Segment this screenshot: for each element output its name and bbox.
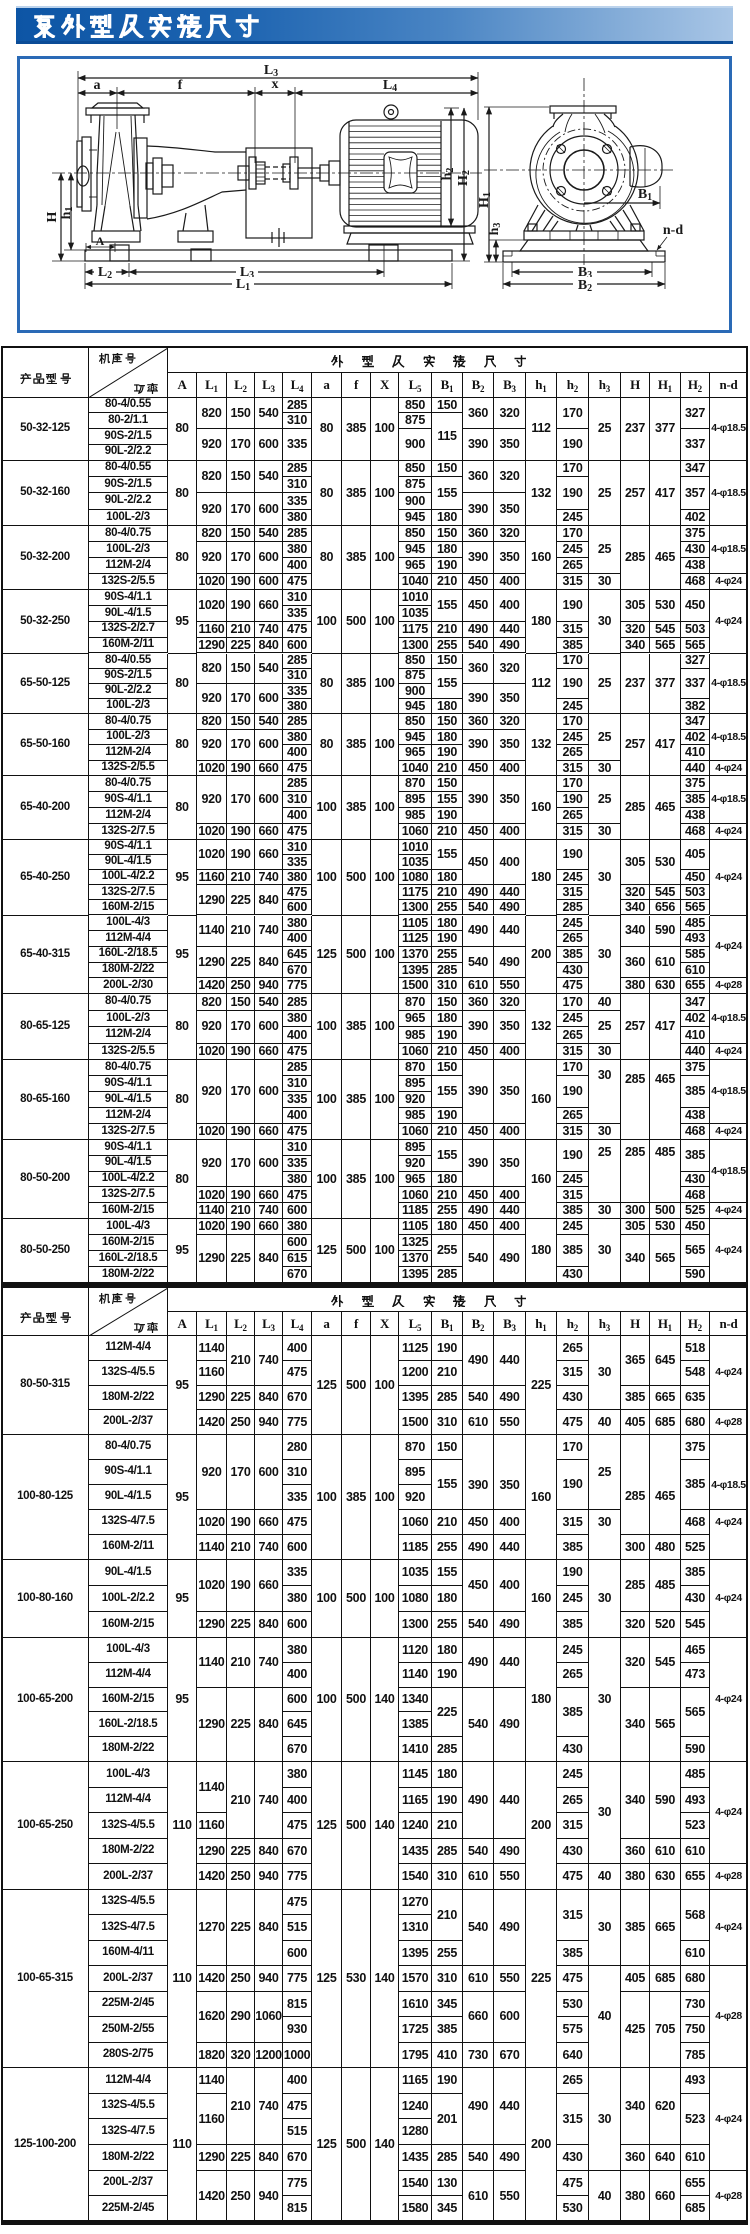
svg-text:f: f [178, 78, 183, 93]
svg-text:H: H [45, 211, 60, 222]
svg-text:a: a [94, 78, 101, 93]
svg-text:L4: L4 [383, 78, 397, 94]
svg-text:B1: B1 [638, 187, 652, 203]
svg-text:H1: H1 [477, 192, 493, 208]
svg-text:h2: h2 [440, 168, 456, 181]
svg-text:A: A [96, 234, 105, 248]
svg-text:x: x [272, 77, 279, 92]
svg-text:H2: H2 [456, 170, 472, 186]
svg-text:n-d: n-d [663, 223, 683, 238]
